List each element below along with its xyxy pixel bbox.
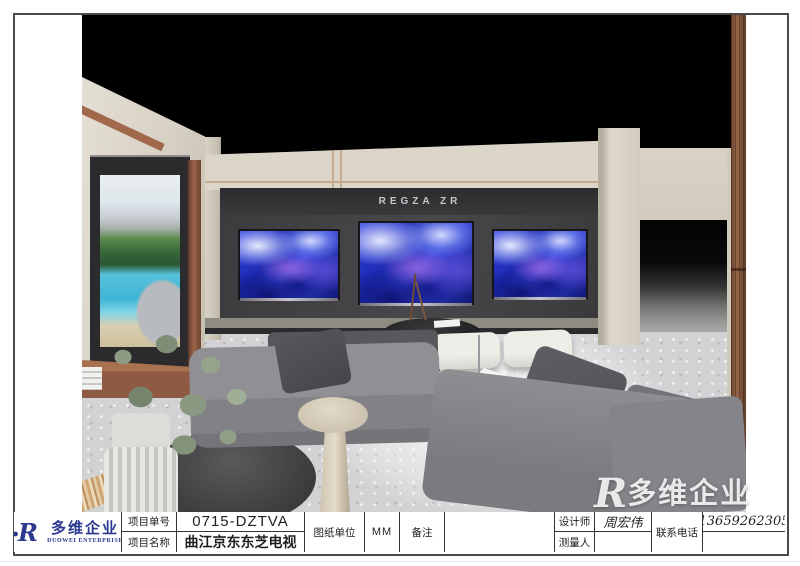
company-logo: R 多维企业 DUOWEI ENTERPRISE <box>14 512 122 552</box>
drawing-unit-value: MM <box>365 512 400 552</box>
brand-name-cn: 多维企业 <box>51 521 119 536</box>
drawing-unit-label: 图纸单位 <box>305 512 365 552</box>
duowei-r-logo-icon: R <box>14 517 44 547</box>
title-block: R 多维企业 DUOWEI ENTERPRISE 项目单号 0715-DZTVA… <box>14 512 786 552</box>
project-no-label: 项目单号 <box>122 512 177 532</box>
remark-label: 备注 <box>400 512 445 552</box>
phone-value-empty <box>703 532 785 552</box>
phone-label: 联系电话 <box>652 512 703 552</box>
project-name-label: 项目名称 <box>122 532 177 552</box>
page-bottom-edge <box>0 561 800 562</box>
brand-name-en: DUOWEI ENTERPRISE <box>47 538 122 544</box>
sheet-border <box>13 13 789 556</box>
remark-value <box>445 512 555 552</box>
drawing-sheet: REGZA ZR <box>0 0 800 566</box>
project-name-value: 曲江京东东芝电视 <box>177 532 305 552</box>
designer-label: 设计师 <box>555 512 595 532</box>
logo-text: 多维企业 DUOWEI ENTERPRISE <box>47 521 122 544</box>
surveyor-label: 测量人 <box>555 532 595 552</box>
project-no-value: 0715-DZTVA <box>177 512 305 532</box>
designer-value: 周宏伟 <box>595 512 652 532</box>
surveyor-value <box>595 532 652 552</box>
svg-text:R: R <box>17 518 38 547</box>
phone-value: 13659262305 <box>703 512 785 532</box>
